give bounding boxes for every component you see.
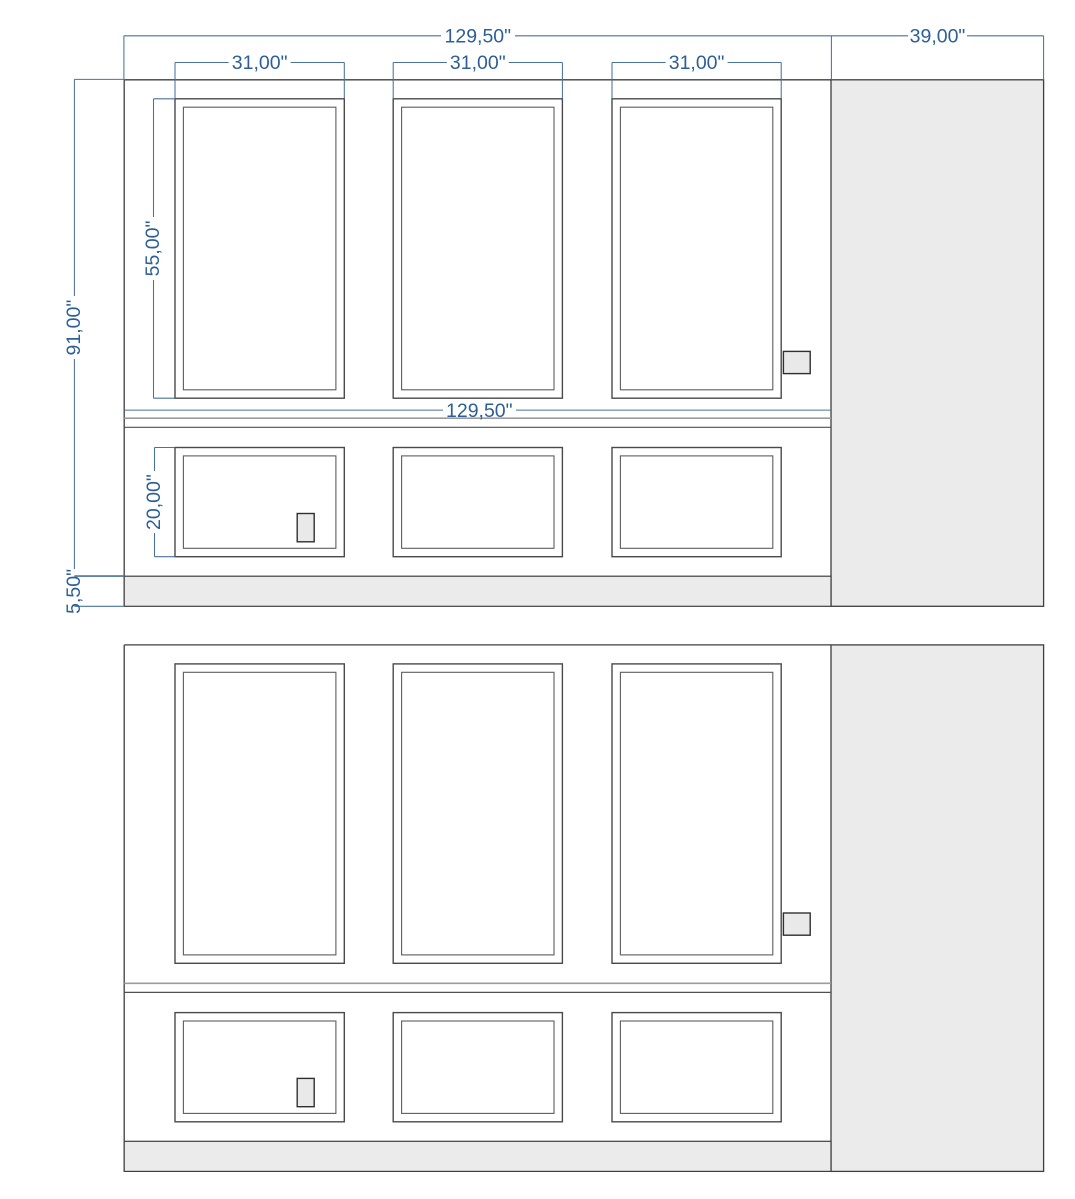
- svg-text:31,00": 31,00": [450, 52, 506, 74]
- svg-text:129,50": 129,50": [445, 25, 512, 47]
- svg-text:129,50": 129,50": [446, 400, 513, 422]
- svg-text:20,00": 20,00": [143, 474, 165, 530]
- svg-text:31,00": 31,00": [232, 52, 288, 74]
- svg-text:91,00": 91,00": [63, 300, 85, 356]
- svg-text:31,00": 31,00": [669, 52, 725, 74]
- svg-text:55,00": 55,00": [142, 221, 164, 277]
- svg-text:5,50": 5,50": [63, 569, 85, 614]
- svg-text:39,00": 39,00": [910, 25, 966, 47]
